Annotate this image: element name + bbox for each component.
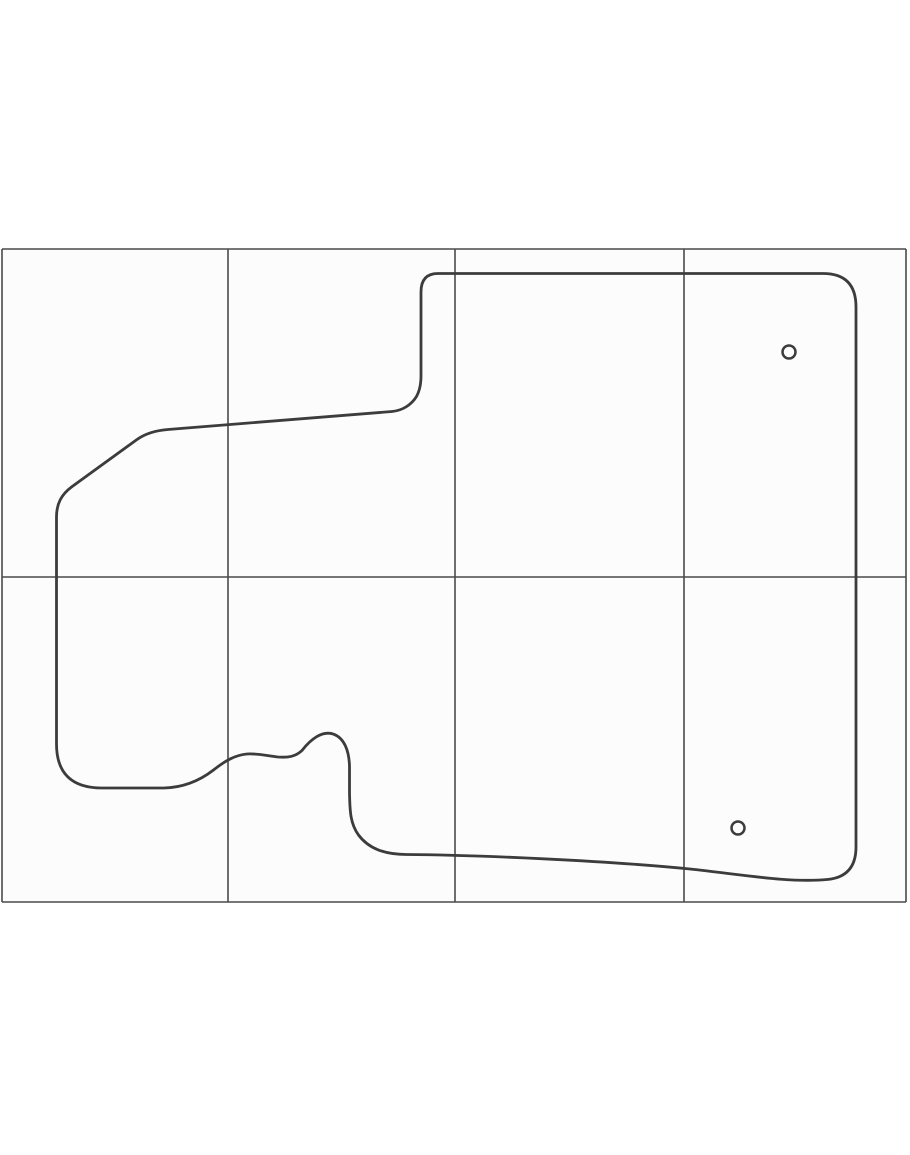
pattern-sheet (0, 0, 910, 1155)
pattern-diagram (0, 0, 910, 1155)
grid-background (2, 249, 906, 902)
